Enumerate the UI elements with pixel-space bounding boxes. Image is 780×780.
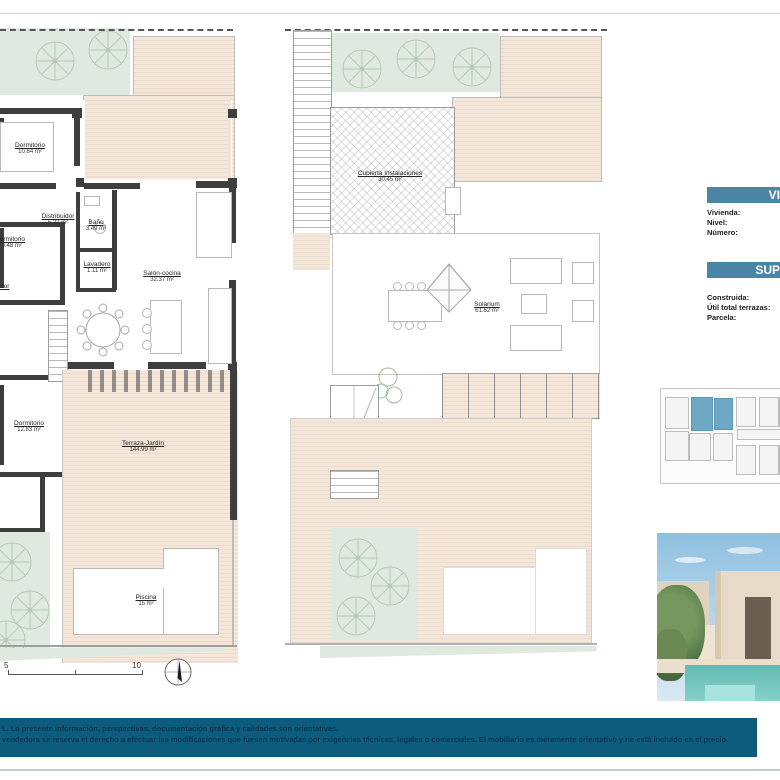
- wall: [112, 190, 117, 290]
- photo-door: [745, 597, 771, 663]
- room-label-cut: dor: [0, 283, 9, 290]
- chair: [393, 321, 402, 330]
- railing-deck: [442, 373, 600, 419]
- umbrella-icon: [425, 262, 473, 314]
- photo-plants2: [657, 629, 687, 681]
- site-unit-highlighted: [714, 398, 733, 430]
- scale-tick: [75, 670, 76, 675]
- wall: [148, 362, 206, 369]
- boundary-zigzag: [285, 29, 607, 31]
- room-label: Lavadero1.11 m²: [83, 261, 110, 275]
- deck-roof-2: [452, 97, 602, 182]
- site-unit: [665, 397, 689, 429]
- field-util-terrazas: Útil total terrazas:: [707, 303, 770, 313]
- wall-pillar: [228, 109, 237, 118]
- tree-icon: [0, 28, 130, 95]
- site-unit: [736, 445, 756, 475]
- photo-cloud: [675, 557, 705, 563]
- scale-tick: [8, 670, 9, 675]
- photo-pool-step: [705, 685, 755, 701]
- kitchen-island: [150, 300, 182, 354]
- garden-bottom: [0, 532, 50, 658]
- room-label: Baño3.49 m²: [86, 219, 106, 233]
- deck-upper-fill: [85, 97, 231, 179]
- header-vivienda-text: VI: [769, 188, 780, 202]
- plan-sheet: Dormitorio10.64 m² Distribuidor5.22 m² B…: [0, 0, 780, 780]
- field-nivel: Nivel:: [707, 218, 740, 228]
- header-superficies-bar: SUP: [707, 262, 780, 278]
- wall: [0, 183, 56, 189]
- site-unit: [759, 445, 779, 475]
- staircase-strip: [293, 30, 332, 235]
- superficies-fields: Construida: Útil total terrazas: Parcela…: [707, 293, 770, 323]
- deck-upper: [133, 36, 235, 100]
- site-unit: [736, 397, 756, 427]
- green-verge: [320, 646, 597, 658]
- disclaimer-line-1: L. La presente información, perspectivas…: [0, 723, 757, 734]
- chair: [405, 321, 414, 330]
- room-label: Dormitorio12.83 m²: [14, 420, 44, 434]
- chair: [393, 282, 402, 291]
- wall: [62, 362, 114, 369]
- floor-plan-ground: Dormitorio10.64 m² Distribuidor5.22 m² B…: [0, 20, 245, 690]
- field-numero: Número:: [707, 228, 740, 238]
- garden-roof: [332, 33, 500, 92]
- stool: [142, 308, 152, 318]
- sun-lounger: [510, 325, 562, 351]
- disclaimer-bar: L. La presente información, perspectivas…: [0, 718, 757, 757]
- field-vivienda: Vivienda:: [707, 208, 740, 218]
- stool: [142, 340, 152, 350]
- bottom-divider: [0, 769, 780, 771]
- north-compass-icon: [163, 657, 193, 687]
- scale-number-5: 5: [4, 661, 8, 670]
- plot-boundary: [0, 645, 237, 647]
- room-label: Piscina15 m²: [136, 594, 157, 608]
- floor-plan-roof: Cubierta Instalaciones30.45 m² Solarium6…: [285, 20, 610, 670]
- wall-pillar: [72, 108, 82, 118]
- site-unit: [759, 397, 779, 427]
- wall: [76, 288, 116, 292]
- header-vivienda-bar: VI: [707, 187, 780, 203]
- tree-icon: [330, 528, 417, 640]
- header-superficies-text: SUP: [755, 263, 780, 277]
- wall: [0, 385, 4, 465]
- disclaimer-line-2: vendedora se reserva el derecho a efectu…: [0, 734, 757, 745]
- plot-edge: [232, 520, 234, 645]
- top-divider: [0, 13, 780, 14]
- wall: [0, 108, 72, 114]
- site-unit: [689, 433, 711, 461]
- wall: [76, 192, 80, 288]
- boundary-zigzag: [0, 29, 233, 31]
- wall: [0, 375, 48, 380]
- tree-icon: [0, 532, 50, 658]
- wall: [76, 248, 116, 252]
- pergola-beams: [88, 370, 231, 392]
- wall: [60, 222, 65, 302]
- wall: [0, 472, 68, 477]
- wall: [74, 118, 80, 166]
- site-common-pool: [737, 429, 780, 440]
- pool-faded-step: [535, 548, 587, 635]
- garden-lower: [330, 528, 417, 640]
- site-key-plan: [660, 388, 780, 484]
- staircase-lower2: [330, 470, 379, 499]
- room-label: Dormitorio10.48 m²: [0, 236, 25, 250]
- sun-lounger: [510, 258, 562, 284]
- vivienda-fields: Vivienda: Nivel: Número:: [707, 208, 740, 238]
- wall-pillar: [76, 178, 84, 187]
- site-unit-highlighted: [691, 397, 713, 431]
- dining-table-icon: [75, 302, 131, 358]
- site-unit: [665, 431, 689, 461]
- sink: [84, 196, 100, 206]
- pool-step: [163, 548, 219, 635]
- pool-notch: [74, 569, 164, 588]
- plot-boundary: [285, 643, 597, 645]
- wall: [40, 477, 45, 532]
- scale-tick: [142, 670, 143, 675]
- chair: [405, 282, 414, 291]
- exterior-render-photo: [657, 533, 780, 701]
- garden-top: [0, 28, 130, 95]
- armchair: [572, 262, 594, 284]
- room-label: Dormitorio10.64 m²: [15, 142, 45, 156]
- room-label: Salón-cocina32.37 m²: [143, 270, 181, 284]
- side-table: [521, 294, 547, 314]
- wall: [84, 183, 140, 189]
- chimney: [445, 187, 461, 215]
- scale-number-10: 10: [132, 661, 141, 670]
- room-label: Solarium61.62 m²: [474, 301, 500, 315]
- sofa: [196, 192, 232, 258]
- tree-icon: [332, 33, 500, 92]
- photo-cloud: [727, 547, 763, 554]
- chair: [417, 321, 426, 330]
- site-unit: [713, 433, 733, 461]
- room-label: Distribuidor5.22 m²: [42, 213, 75, 227]
- armchair: [572, 300, 594, 322]
- room-label: Terraza-Jardín144.99 m²: [122, 440, 164, 454]
- pool-faded: [443, 567, 537, 635]
- stool: [142, 324, 152, 334]
- wall: [0, 300, 65, 305]
- field-construida: Construida:: [707, 293, 770, 303]
- kitchen-counter: [208, 288, 232, 364]
- field-parcela: Parcela:: [707, 313, 770, 323]
- deck-patch: [293, 233, 330, 270]
- room-label: Cubierta Instalaciones30.45 m²: [358, 170, 422, 184]
- deck-roof-1: [500, 36, 602, 100]
- wall: [230, 370, 237, 520]
